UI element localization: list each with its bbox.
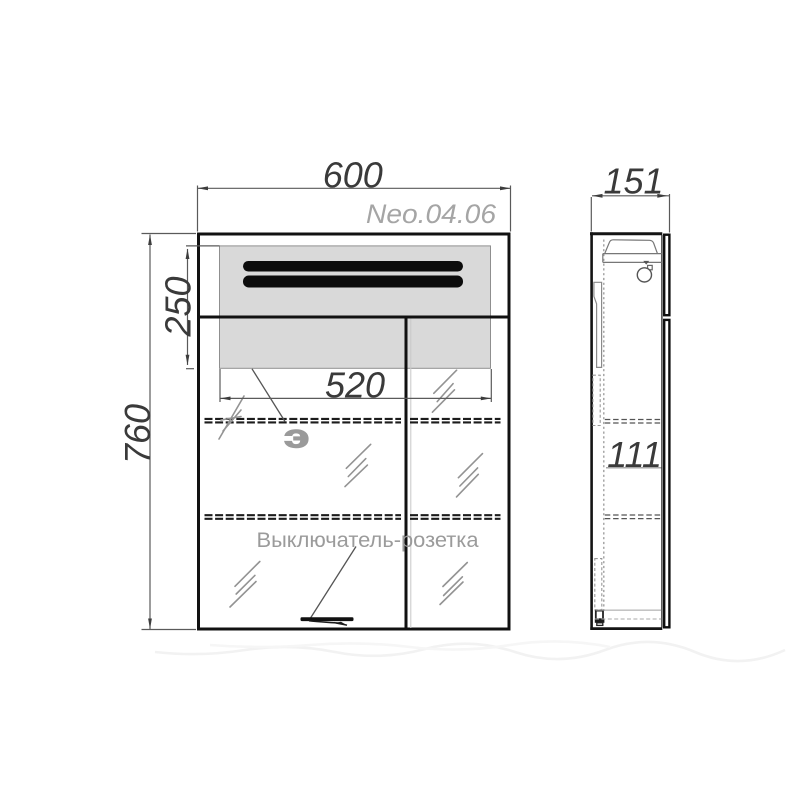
svg-text:Выключатель-розетка: Выключатель-розетка: [257, 528, 479, 552]
svg-text:760: 760: [117, 404, 158, 464]
svg-text:151: 151: [603, 160, 663, 201]
svg-text:Neo.04.06: Neo.04.06: [366, 199, 497, 229]
svg-text:600: 600: [323, 154, 383, 195]
svg-text:250: 250: [158, 276, 199, 337]
svg-text:111: 111: [607, 434, 662, 475]
svg-text:520: 520: [325, 364, 385, 405]
svg-text:э: э: [284, 417, 310, 454]
